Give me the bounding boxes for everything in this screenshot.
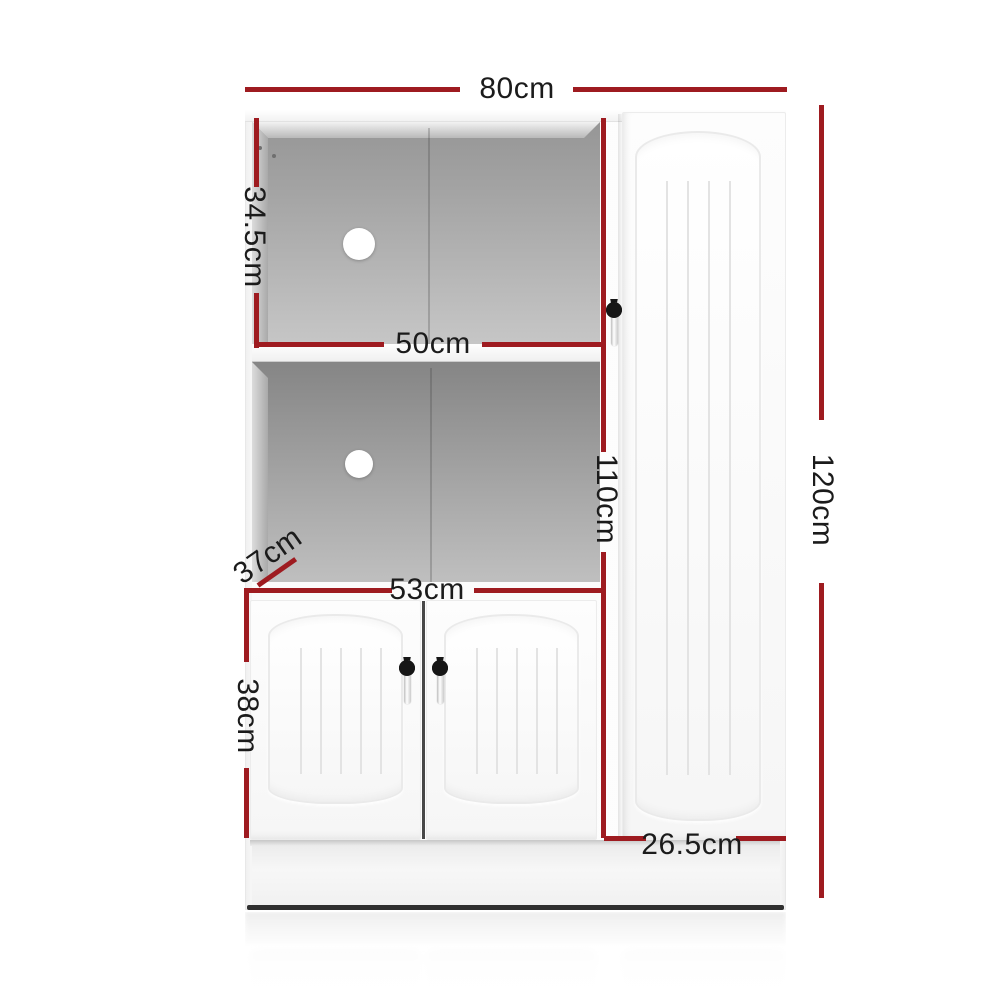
dim-label-overall-width: 80cm <box>479 72 554 106</box>
dim-label-right-door-width: 26.5cm <box>641 828 742 862</box>
door-arch-panel <box>268 614 403 804</box>
tall-door <box>622 112 786 840</box>
dim-line-53cm-right <box>474 588 603 593</box>
dim-line-80cm-left <box>245 87 460 92</box>
dim-label-top-shelf-height: 34.5cm <box>237 186 271 287</box>
shelf-pin-hole <box>272 154 276 158</box>
handle-knob <box>432 660 448 676</box>
dim-label-lower-doors-height: 38cm <box>230 678 264 753</box>
dim-line-38cm-top <box>244 588 249 662</box>
dim-line-120cm-bottom <box>819 583 824 898</box>
reflection-fade <box>245 912 786 998</box>
dim-line-26cm-left <box>604 836 646 841</box>
dim-line-50cm-left <box>258 342 384 347</box>
dimension-diagram: 80cm 50cm 53cm 26.5cm 34.5cm 38cm 110cm … <box>0 0 1000 1000</box>
floor-reflection <box>245 912 786 998</box>
dim-line-80cm-right <box>573 87 787 92</box>
dim-label-overall-height: 120cm <box>805 454 839 547</box>
door-gap-line <box>422 601 425 839</box>
lower-door-left <box>250 600 421 840</box>
dim-line-120cm-top <box>819 105 824 420</box>
open-compartment-top <box>252 122 600 344</box>
compartment-ceiling <box>252 122 600 138</box>
dim-label-shelf-width: 50cm <box>395 327 470 361</box>
handle-knob <box>399 660 415 676</box>
dim-line-50cm-right <box>482 342 606 347</box>
lower-door-right <box>426 600 597 840</box>
door-grooves <box>458 648 565 774</box>
back-panel-seam <box>430 368 432 582</box>
dim-line-34cm-bottom <box>254 293 259 348</box>
back-panel-seam <box>428 128 430 344</box>
door-grooves <box>647 181 749 775</box>
base-edge <box>247 905 784 910</box>
door-arch-panel <box>635 131 761 821</box>
dim-line-110cm-top <box>601 118 606 452</box>
dim-line-38cm-bottom <box>244 768 249 838</box>
dim-line-34cm-top <box>254 118 259 187</box>
dim-line-110cm-bottom <box>601 552 606 838</box>
dim-line-26cm-right <box>736 836 786 841</box>
handle-knob <box>606 302 622 318</box>
dim-line-53cm-left <box>248 588 392 593</box>
door-grooves <box>282 648 389 774</box>
dim-label-left-section-height: 110cm <box>589 454 623 544</box>
dim-label-lower-doors-width: 53cm <box>389 573 464 607</box>
door-arch-panel <box>444 614 579 804</box>
cable-hole <box>343 228 375 260</box>
cable-hole <box>345 450 373 478</box>
